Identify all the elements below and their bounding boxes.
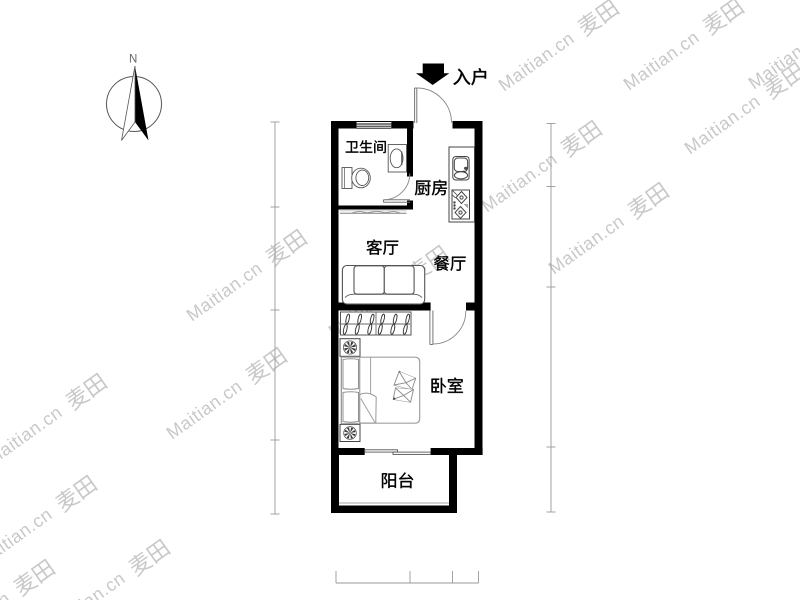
svg-text:N: N: [129, 54, 137, 66]
